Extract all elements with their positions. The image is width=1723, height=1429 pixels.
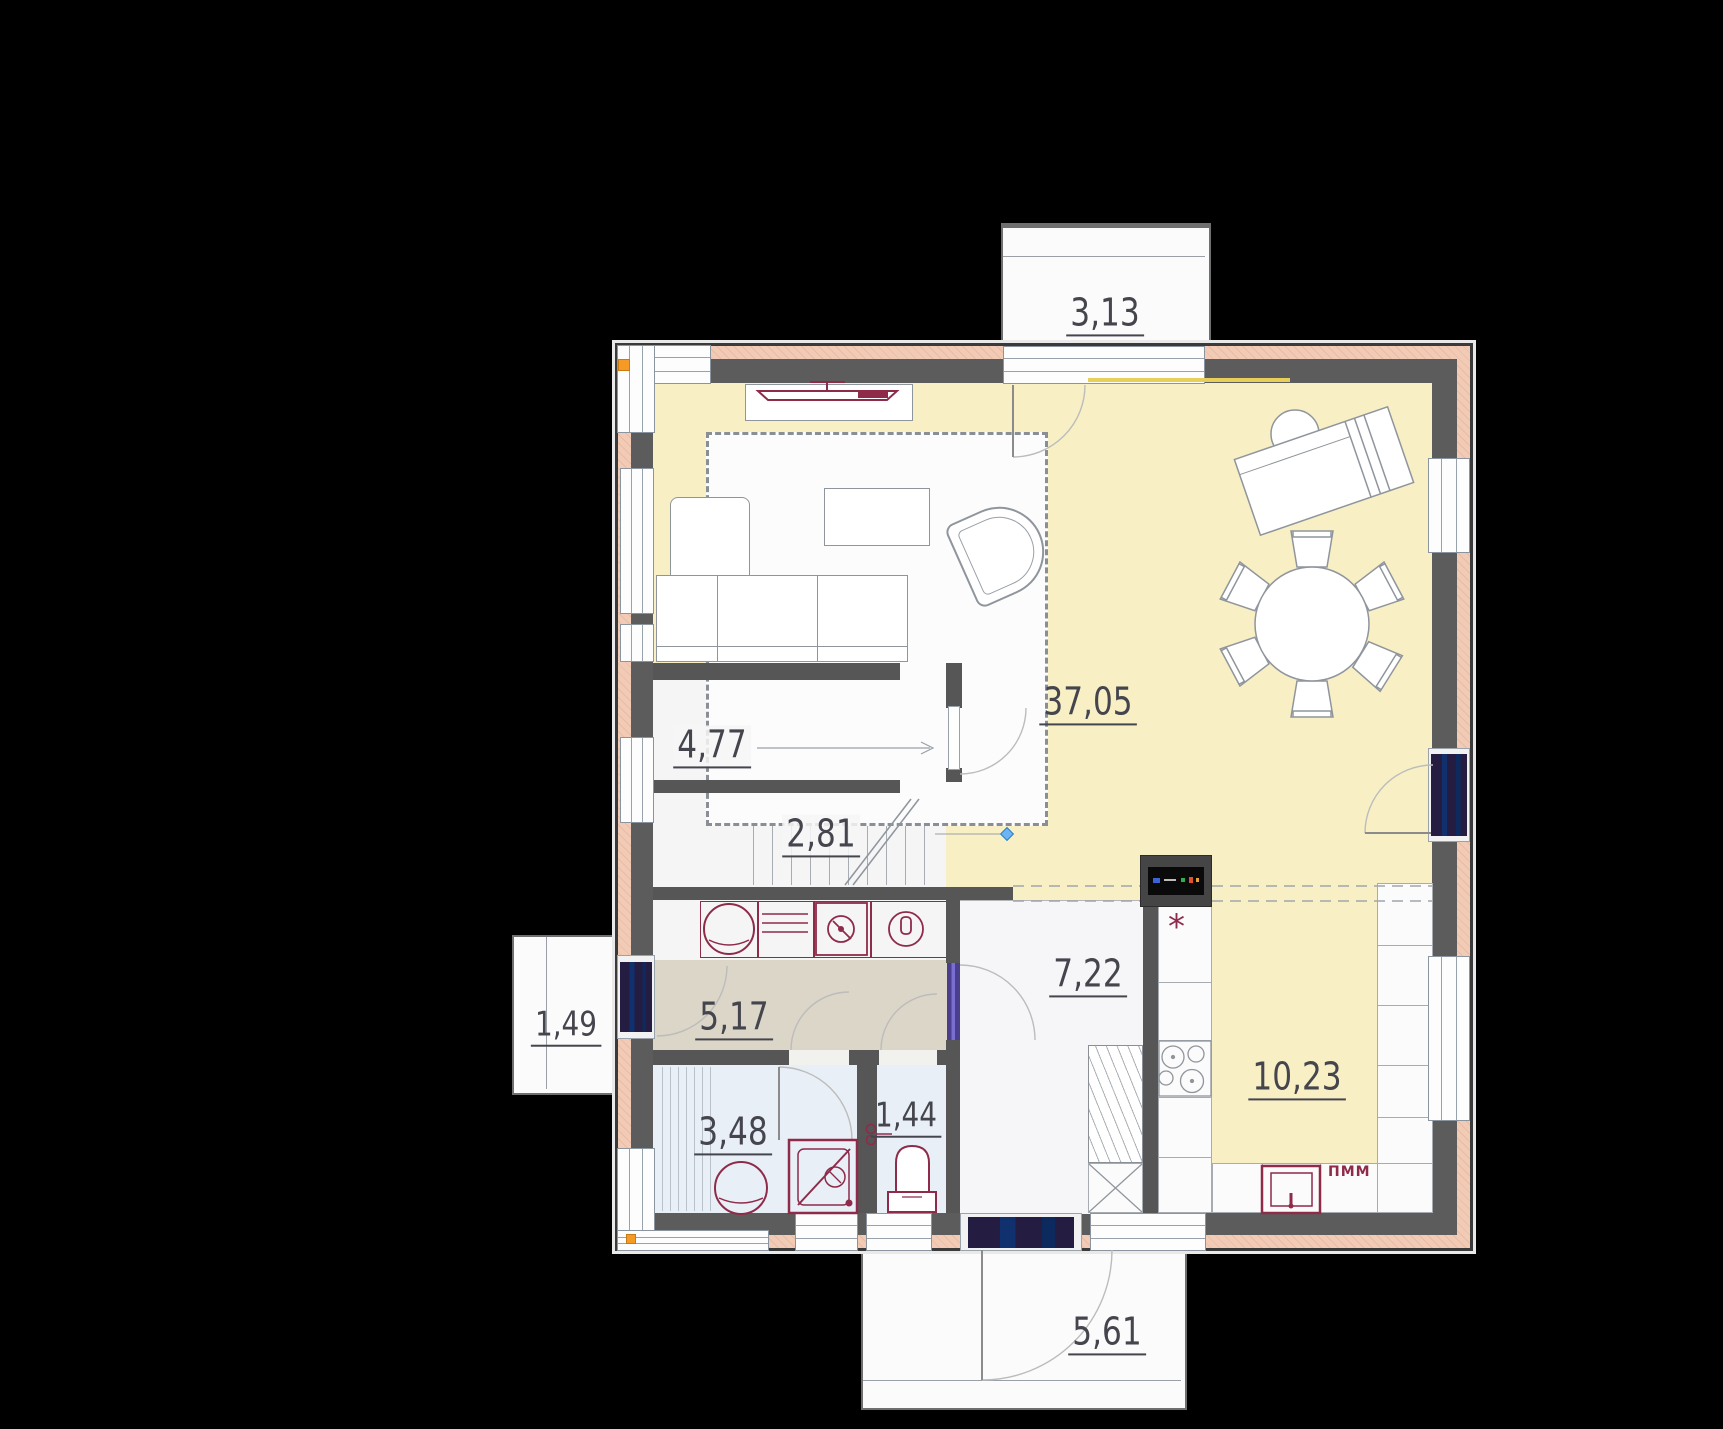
room-label-hall7: 7,22 xyxy=(1049,954,1127,997)
room-label-balcony: 3,13 xyxy=(1066,293,1144,336)
hob-icon xyxy=(1159,1041,1211,1096)
room-label-wc: 1,44 xyxy=(871,1099,941,1138)
room-label-kitchen: 10,23 xyxy=(1248,1057,1345,1100)
floor-plan-canvas: 3,13 37,05 4,77 2,81 1,49 5,17 7,22 10,2… xyxy=(0,0,1723,1429)
shower-icon xyxy=(789,1140,857,1213)
room-label-stair-lower: 2,81 xyxy=(782,814,860,857)
room-label-terrace: 5,61 xyxy=(1068,1312,1146,1355)
kitchen-sink-icon xyxy=(1262,1166,1320,1213)
hob-marker: * xyxy=(1168,910,1185,944)
plan-annotations-overlay xyxy=(0,0,1723,1429)
bath-sink-icon xyxy=(715,1162,767,1214)
room-label-bathroom: 3,48 xyxy=(694,1112,772,1155)
dining-set xyxy=(1220,531,1404,717)
room-label-stair-upper: 4,77 xyxy=(673,725,751,768)
tv-icon xyxy=(758,382,897,400)
dining-table xyxy=(1255,567,1369,681)
washing-machine-icon xyxy=(704,904,754,954)
boiler-icon xyxy=(889,912,923,946)
room-label-living: 37,05 xyxy=(1039,682,1136,725)
desk-group xyxy=(1234,407,1413,535)
laundry-shelf-icon xyxy=(762,914,808,932)
room-label-hallway: 5,17 xyxy=(695,997,773,1040)
room-label-porch: 1,49 xyxy=(531,1008,601,1047)
toilet-icon xyxy=(888,1146,936,1212)
ceiling-dashed-lines xyxy=(1013,886,1432,901)
dryer-fan-icon xyxy=(816,903,867,955)
stair-walk-line xyxy=(757,742,933,754)
dishwasher-label: ПММ xyxy=(1328,1164,1371,1180)
xbox-diagonals xyxy=(1089,1164,1142,1212)
